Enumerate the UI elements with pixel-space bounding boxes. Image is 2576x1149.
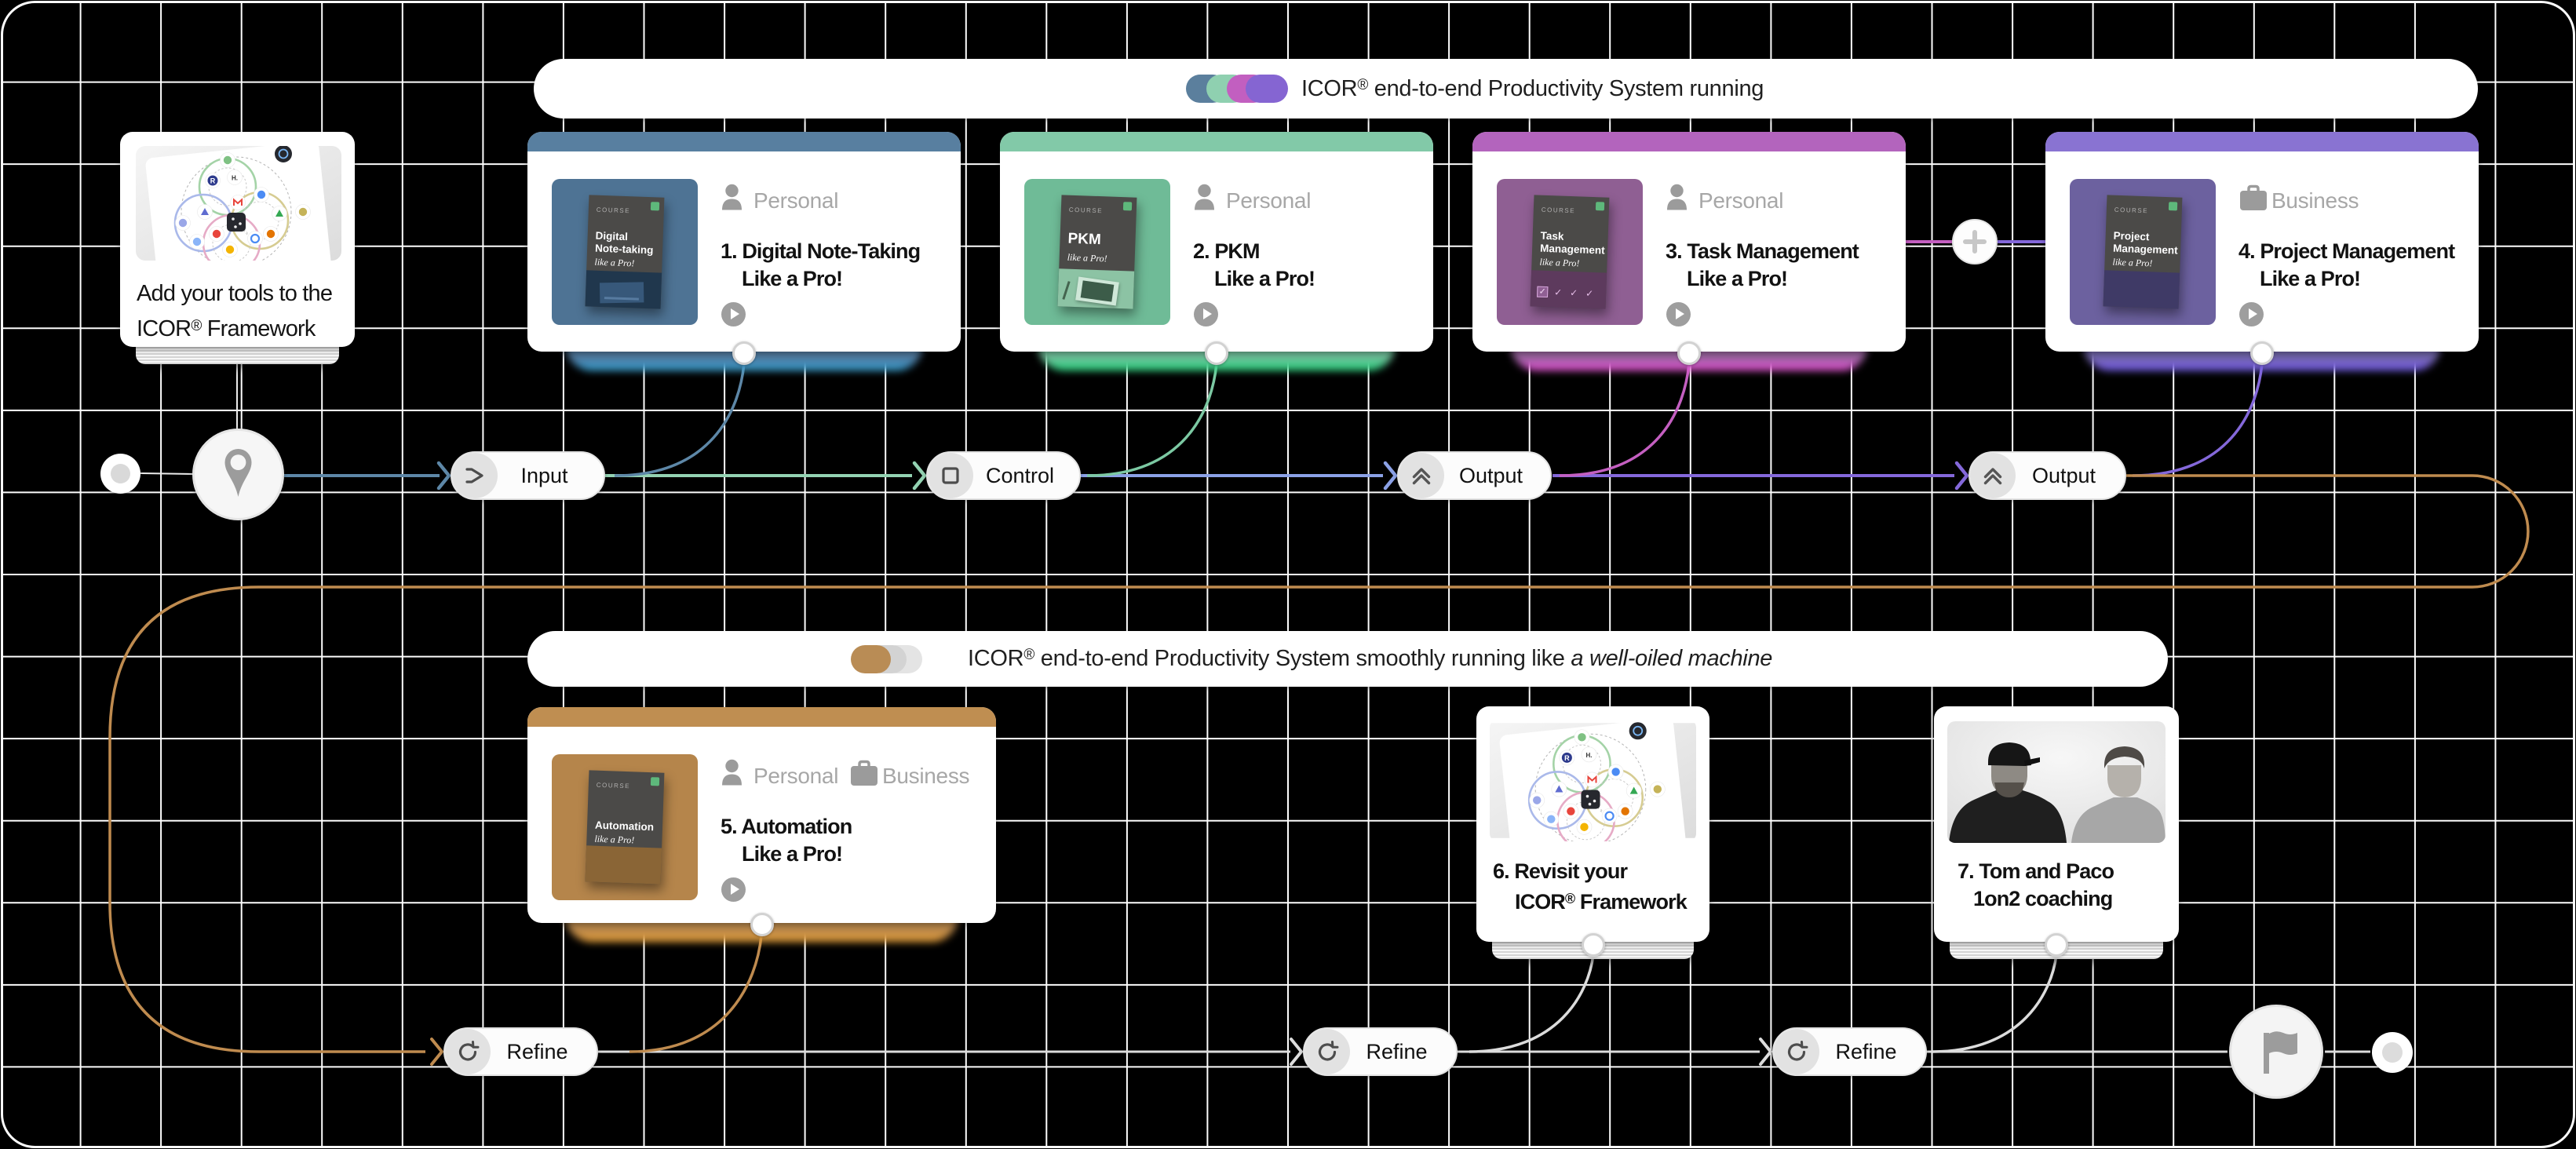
svg-text:R: R (1564, 754, 1570, 762)
svg-text:H.: H. (232, 175, 238, 182)
svg-text:H.: H. (1585, 752, 1592, 759)
svg-text:R: R (210, 177, 216, 185)
